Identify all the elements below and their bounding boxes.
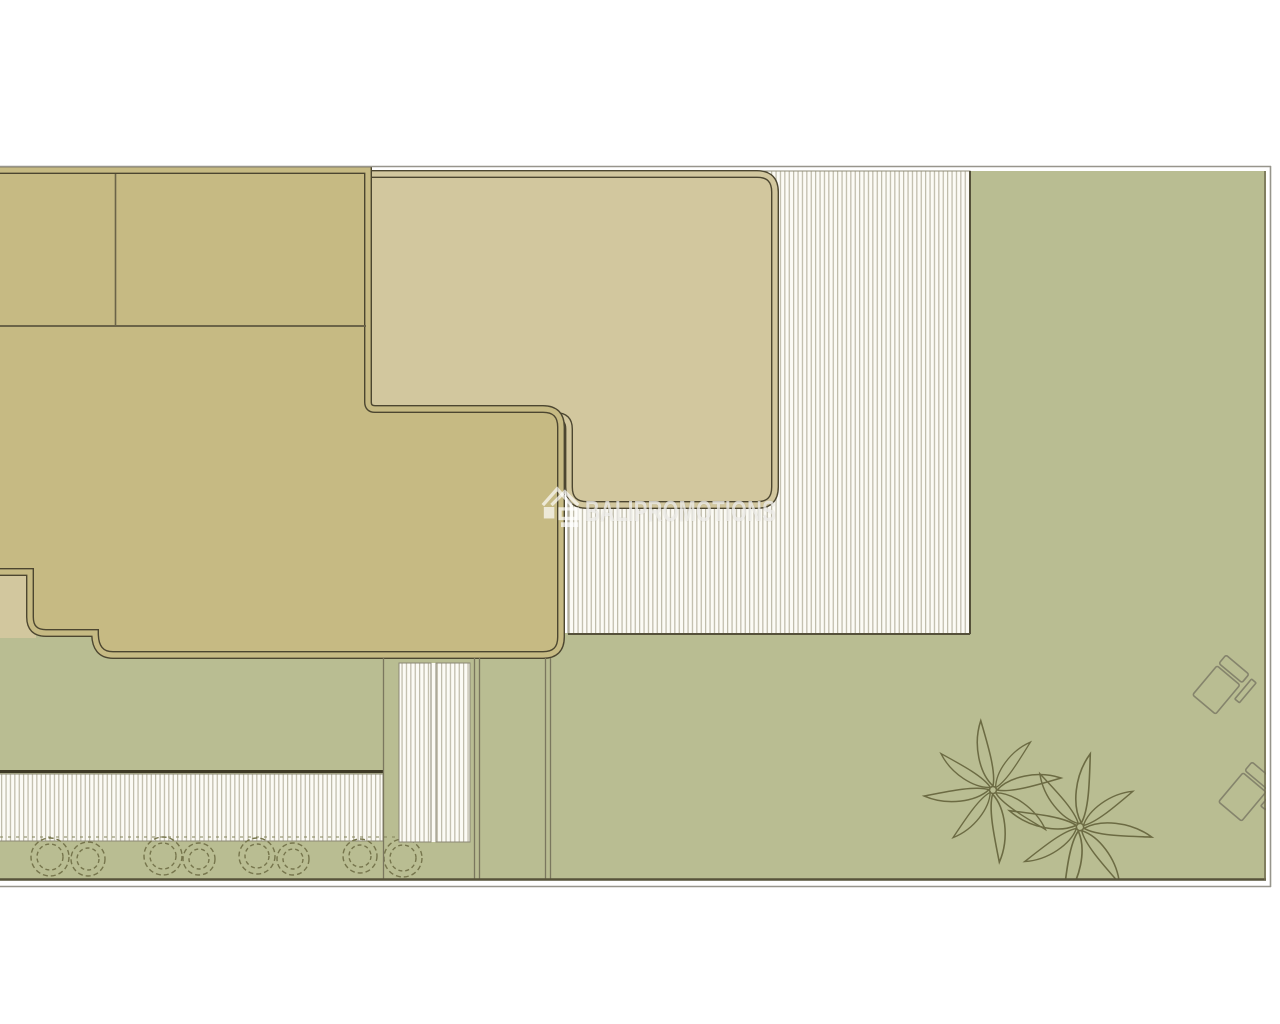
hedge-hatch-strip xyxy=(0,774,383,841)
site-plan-drawing xyxy=(0,0,1280,1024)
walkway-hatch-left xyxy=(399,663,431,842)
lawn-bottom-garden xyxy=(0,633,1266,880)
site-plan-page: BALIPROMOTIONS xyxy=(0,0,1280,1024)
walkway-hatch-right xyxy=(436,663,470,842)
